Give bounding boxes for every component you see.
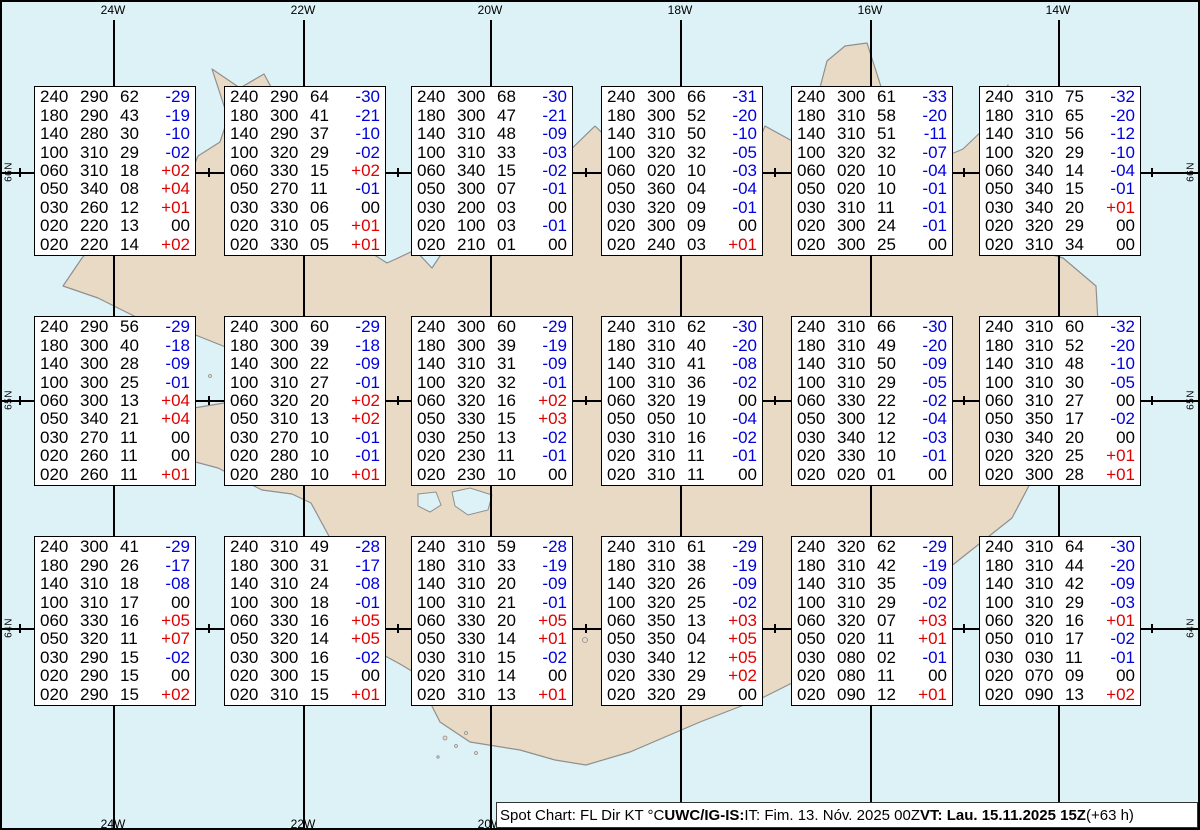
spot-row: 06033016+05 [230, 612, 380, 630]
spot-row: 14031051-11 [797, 125, 947, 143]
kt-cell: 11 [497, 447, 522, 465]
spot-row: 03032009-01 [607, 199, 757, 217]
kt-cell: 26 [687, 575, 712, 593]
temp-cell: -05 [1099, 374, 1135, 392]
dir-cell: 310 [647, 447, 678, 465]
latitude-label-left: 65N [4, 390, 15, 410]
fl-cell: 020 [40, 667, 71, 685]
dir-cell: 240 [647, 236, 678, 254]
longitude-label-bottom: 22W [291, 817, 316, 830]
fl-cell: 060 [417, 162, 448, 180]
dir-cell: 270 [270, 180, 301, 198]
kt-cell: 10 [310, 447, 335, 465]
spot-row: 05027011-01 [230, 180, 380, 198]
kt-cell: 20 [1065, 199, 1090, 217]
temp-cell: +03 [531, 410, 567, 428]
temp-cell: +01 [1099, 199, 1135, 217]
dir-cell: 210 [457, 236, 488, 254]
dir-cell: 320 [270, 392, 301, 410]
kt-cell: 13 [687, 612, 712, 630]
kt-cell: 62 [120, 88, 145, 106]
fl-cell: 020 [607, 217, 638, 235]
spot-box: 24030066-3118030052-2014031050-101003203… [601, 86, 763, 256]
temp-cell: 00 [531, 199, 567, 217]
kt-cell: 19 [687, 392, 712, 410]
temp-cell: +02 [344, 162, 380, 180]
kt-cell: 13 [1065, 686, 1090, 704]
temp-cell: -02 [154, 649, 190, 667]
fl-cell: 030 [985, 649, 1016, 667]
fl-cell: 180 [230, 107, 261, 125]
kt-cell: 40 [687, 337, 712, 355]
temp-cell: 00 [1099, 217, 1135, 235]
spot-row: 05033015+03 [417, 410, 567, 428]
temp-cell: -30 [531, 88, 567, 106]
dir-cell: 310 [80, 162, 111, 180]
grid-minor-tick [774, 396, 776, 405]
dir-cell: 320 [1025, 612, 1056, 630]
dir-cell: 310 [1025, 538, 1056, 556]
temp-cell: -03 [721, 162, 757, 180]
dir-cell: 300 [270, 107, 301, 125]
temp-cell: 00 [154, 429, 190, 447]
spot-row: 03008002-01 [797, 649, 947, 667]
dir-cell: 340 [837, 429, 868, 447]
kt-cell: 62 [877, 538, 902, 556]
temp-cell: -19 [154, 107, 190, 125]
kt-cell: 11 [877, 199, 902, 217]
dir-cell: 340 [80, 180, 111, 198]
dir-cell: 310 [80, 575, 111, 593]
fl-cell: 060 [797, 392, 828, 410]
fl-cell: 050 [417, 410, 448, 428]
fl-cell: 020 [607, 667, 638, 685]
temp-cell: -19 [531, 337, 567, 355]
kt-cell: 29 [687, 686, 712, 704]
spot-row: 18031065-20 [985, 107, 1135, 125]
kt-cell: 33 [497, 144, 522, 162]
dir-cell: 020 [837, 466, 868, 484]
kt-cell: 32 [687, 144, 712, 162]
fl-cell: 020 [607, 236, 638, 254]
spot-row: 0203101400 [417, 667, 567, 685]
temp-cell: -01 [721, 199, 757, 217]
spot-row: 18030039-19 [417, 337, 567, 355]
longitude-label-bottom: 24W [101, 817, 126, 830]
fl-cell: 100 [607, 594, 638, 612]
temp-cell: -10 [154, 125, 190, 143]
kt-cell: 12 [687, 649, 712, 667]
spot-row: 02028010+01 [230, 466, 380, 484]
kt-cell: 49 [877, 337, 902, 355]
fl-cell: 030 [607, 199, 638, 217]
spot-row: 06002010-04 [797, 162, 947, 180]
temp-cell: -01 [344, 447, 380, 465]
latitude-label-right: 65N [1186, 390, 1197, 410]
temp-cell: -21 [531, 107, 567, 125]
temp-cell: -01 [531, 594, 567, 612]
spot-row: 02033005+01 [230, 236, 380, 254]
spot-row: 03034020+01 [985, 199, 1135, 217]
kt-cell: 25 [1065, 447, 1090, 465]
spot-row: 10031030-05 [985, 374, 1135, 392]
kt-cell: 15 [310, 162, 335, 180]
fl-cell: 030 [607, 429, 638, 447]
kt-cell: 52 [1065, 337, 1090, 355]
dir-cell: 340 [1025, 199, 1056, 217]
grid-minor-tick [208, 168, 210, 177]
temp-cell: 00 [154, 447, 190, 465]
temp-cell: -01 [1099, 180, 1135, 198]
temp-cell: -17 [154, 557, 190, 575]
spot-row: 14031050-10 [607, 125, 757, 143]
kt-cell: 60 [497, 318, 522, 336]
kt-cell: 29 [877, 594, 902, 612]
spot-row: 14032026-09 [607, 575, 757, 593]
kt-cell: 30 [1065, 374, 1090, 392]
kt-cell: 29 [120, 144, 145, 162]
spot-row: 14031041-08 [607, 355, 757, 373]
spot-row: 03030016-02 [230, 649, 380, 667]
dir-cell: 310 [1025, 318, 1056, 336]
fl-cell: 180 [230, 337, 261, 355]
kt-cell: 41 [687, 355, 712, 373]
spot-row: 02031013+01 [417, 686, 567, 704]
dir-cell: 290 [80, 107, 111, 125]
temp-cell: -20 [721, 337, 757, 355]
fl-cell: 020 [417, 466, 448, 484]
temp-cell: -10 [1099, 355, 1135, 373]
spot-row: 02009013+02 [985, 686, 1135, 704]
spot-row: 03003011-01 [985, 649, 1135, 667]
dir-cell: 310 [837, 199, 868, 217]
fl-cell: 100 [40, 374, 71, 392]
legend-bar: Spot Chart: FL Dir KT °C UWC/IG-IS: IT: … [496, 802, 1198, 828]
legend-segment: IT: Fim. 13. Nóv. 2025 00Z [744, 807, 920, 824]
fl-cell: 050 [40, 410, 71, 428]
dir-cell: 310 [80, 594, 111, 612]
fl-cell: 020 [797, 236, 828, 254]
fl-cell: 180 [417, 337, 448, 355]
fl-cell: 020 [417, 236, 448, 254]
dir-cell: 290 [80, 557, 111, 575]
kt-cell: 29 [310, 144, 335, 162]
dir-cell: 310 [837, 318, 868, 336]
fl-cell: 030 [797, 199, 828, 217]
dir-cell: 290 [80, 88, 111, 106]
kt-cell: 14 [310, 630, 335, 648]
dir-cell: 200 [457, 199, 488, 217]
temp-cell: -32 [1099, 318, 1135, 336]
kt-cell: 18 [120, 575, 145, 593]
dir-cell: 310 [457, 125, 488, 143]
spot-row: 24030068-30 [417, 88, 567, 106]
spot-row: 10031029-03 [985, 594, 1135, 612]
kt-cell: 11 [120, 466, 145, 484]
kt-cell: 14 [497, 667, 522, 685]
spot-row: 1003101700 [40, 594, 190, 612]
kt-cell: 64 [1065, 538, 1090, 556]
temp-cell: -29 [721, 538, 757, 556]
dir-cell: 300 [80, 538, 111, 556]
spot-row: 24030041-29 [40, 538, 190, 556]
spot-row: 18031052-20 [985, 337, 1135, 355]
temp-cell: +03 [721, 612, 757, 630]
dir-cell: 320 [1025, 144, 1056, 162]
dir-cell: 310 [270, 217, 301, 235]
latitude-label-left: 64N [4, 618, 15, 638]
spot-row: 05002011+01 [797, 630, 947, 648]
kt-cell: 29 [1065, 594, 1090, 612]
longitude-label-top: 16W [858, 3, 883, 17]
temp-cell: -04 [1099, 162, 1135, 180]
kt-cell: 16 [310, 649, 335, 667]
spot-row: 05035017-02 [985, 410, 1135, 428]
temp-cell: +01 [1099, 466, 1135, 484]
dir-cell: 250 [457, 429, 488, 447]
spot-row: 10031036-02 [607, 374, 757, 392]
fl-cell: 030 [607, 649, 638, 667]
kt-cell: 39 [497, 337, 522, 355]
fl-cell: 020 [230, 466, 261, 484]
fl-cell: 050 [40, 180, 71, 198]
dir-cell: 010 [1025, 630, 1056, 648]
fl-cell: 020 [797, 217, 828, 235]
temp-cell: -09 [1099, 575, 1135, 593]
dir-cell: 310 [270, 575, 301, 593]
fl-cell: 240 [230, 88, 261, 106]
fl-cell: 060 [230, 162, 261, 180]
kt-cell: 24 [310, 575, 335, 593]
temp-cell: -20 [1099, 557, 1135, 575]
dir-cell: 090 [1025, 686, 1056, 704]
temp-cell: -19 [531, 557, 567, 575]
fl-cell: 060 [985, 612, 1016, 630]
fl-cell: 100 [417, 594, 448, 612]
temp-cell: -29 [911, 538, 947, 556]
dir-cell: 300 [80, 355, 111, 373]
dir-cell: 310 [647, 355, 678, 373]
dir-cell: 350 [647, 612, 678, 630]
dir-cell: 310 [270, 410, 301, 428]
kt-cell: 16 [310, 612, 335, 630]
spot-row: 18031049-20 [797, 337, 947, 355]
temp-cell: -32 [1099, 88, 1135, 106]
kt-cell: 11 [877, 630, 902, 648]
dir-cell: 300 [837, 236, 868, 254]
spot-row: 24029062-29 [40, 88, 190, 106]
fl-cell: 180 [417, 107, 448, 125]
temp-cell: +02 [154, 686, 190, 704]
fl-cell: 100 [607, 144, 638, 162]
kt-cell: 64 [310, 88, 335, 106]
dir-cell: 300 [457, 180, 488, 198]
temp-cell: -09 [154, 355, 190, 373]
temp-cell: -01 [911, 447, 947, 465]
spot-row: 05033014+01 [417, 630, 567, 648]
fl-cell: 060 [40, 162, 71, 180]
spot-row: 18030039-18 [230, 337, 380, 355]
spot-row: 0302000300 [417, 199, 567, 217]
temp-cell: +02 [154, 162, 190, 180]
spot-row: 10031029-05 [797, 374, 947, 392]
spot-row: 03029015-02 [40, 649, 190, 667]
dir-cell: 300 [1025, 466, 1056, 484]
fl-cell: 240 [607, 318, 638, 336]
temp-cell: +01 [344, 217, 380, 235]
temp-cell: -19 [721, 557, 757, 575]
fl-cell: 020 [40, 217, 71, 235]
fl-cell: 240 [230, 318, 261, 336]
fl-cell: 180 [985, 107, 1016, 125]
spot-row: 10032032-01 [417, 374, 567, 392]
fl-cell: 180 [797, 337, 828, 355]
spot-row: 02033010-01 [797, 447, 947, 465]
dir-cell: 340 [1025, 429, 1056, 447]
kt-cell: 28 [120, 355, 145, 373]
temp-cell: -30 [344, 88, 380, 106]
kt-cell: 01 [877, 466, 902, 484]
dir-cell: 020 [647, 162, 678, 180]
temp-cell: -20 [721, 107, 757, 125]
dir-cell: 300 [457, 107, 488, 125]
kt-cell: 11 [120, 630, 145, 648]
dir-cell: 350 [1025, 410, 1056, 428]
fl-cell: 140 [797, 125, 828, 143]
dir-cell: 020 [837, 630, 868, 648]
fl-cell: 030 [985, 429, 1016, 447]
spot-row: 03031015-02 [417, 649, 567, 667]
temp-cell: -04 [911, 162, 947, 180]
temp-cell: -29 [154, 538, 190, 556]
spot-row: 14028030-10 [40, 125, 190, 143]
fl-cell: 180 [985, 337, 1016, 355]
dir-cell: 300 [647, 217, 678, 235]
kt-cell: 15 [497, 162, 522, 180]
temp-cell: -02 [531, 162, 567, 180]
dir-cell: 310 [837, 355, 868, 373]
temp-cell: -02 [531, 429, 567, 447]
kt-cell: 04 [687, 630, 712, 648]
temp-cell: -01 [531, 374, 567, 392]
fl-cell: 020 [797, 667, 828, 685]
kt-cell: 56 [1065, 125, 1090, 143]
fl-cell: 020 [607, 686, 638, 704]
spot-row: 06034015-02 [417, 162, 567, 180]
dir-cell: 080 [837, 649, 868, 667]
longitude-label-top: 14W [1046, 3, 1071, 17]
longitude-label-top: 22W [291, 3, 316, 17]
spot-box: 24030061-3318031058-2014031051-111003203… [791, 86, 953, 256]
spot-row: 02033029+02 [607, 667, 757, 685]
fl-cell: 030 [230, 199, 261, 217]
kt-cell: 58 [877, 107, 902, 125]
dir-cell: 310 [457, 594, 488, 612]
spot-row: 10032029-10 [985, 144, 1135, 162]
kt-cell: 51 [877, 125, 902, 143]
kt-cell: 60 [310, 318, 335, 336]
fl-cell: 060 [230, 612, 261, 630]
spot-row: 24031064-30 [985, 538, 1135, 556]
temp-cell: +02 [154, 236, 190, 254]
dir-cell: 310 [457, 557, 488, 575]
dir-cell: 310 [1025, 107, 1056, 125]
temp-cell: 00 [721, 466, 757, 484]
dir-cell: 310 [647, 125, 678, 143]
spot-row: 24031049-28 [230, 538, 380, 556]
temp-cell: +02 [1099, 686, 1135, 704]
grid-minor-tick [963, 168, 965, 177]
fl-cell: 020 [417, 217, 448, 235]
kt-cell: 10 [877, 162, 902, 180]
fl-cell: 050 [985, 410, 1016, 428]
fl-cell: 180 [607, 337, 638, 355]
kt-cell: 21 [120, 410, 145, 428]
kt-cell: 25 [877, 236, 902, 254]
dir-cell: 310 [1025, 392, 1056, 410]
dir-cell: 320 [1025, 447, 1056, 465]
dir-cell: 310 [457, 686, 488, 704]
spot-row: 0303402000 [985, 429, 1135, 447]
fl-cell: 020 [985, 466, 1016, 484]
dir-cell: 280 [270, 466, 301, 484]
temp-cell: -30 [911, 318, 947, 336]
spot-row: 24031062-30 [607, 318, 757, 336]
temp-cell: -09 [344, 355, 380, 373]
dir-cell: 340 [1025, 180, 1056, 198]
fl-cell: 030 [417, 429, 448, 447]
temp-cell: -28 [344, 538, 380, 556]
kt-cell: 18 [120, 162, 145, 180]
island [209, 375, 212, 378]
dir-cell: 300 [80, 374, 111, 392]
spot-row: 02030024-01 [797, 217, 947, 235]
temp-cell: 00 [1099, 392, 1135, 410]
temp-cell: -10 [344, 125, 380, 143]
fl-cell: 050 [230, 180, 261, 198]
kt-cell: 08 [120, 180, 145, 198]
temp-cell: -18 [344, 337, 380, 355]
temp-cell: -02 [721, 374, 757, 392]
dir-cell: 310 [1025, 575, 1056, 593]
dir-cell: 360 [647, 180, 678, 198]
fl-cell: 030 [417, 199, 448, 217]
spot-box: 24032062-2918031042-1914031035-091003102… [791, 536, 953, 706]
dir-cell: 320 [647, 575, 678, 593]
fl-cell: 140 [40, 575, 71, 593]
temp-cell: -17 [344, 557, 380, 575]
spot-row: 0203101100 [607, 466, 757, 484]
kt-cell: 47 [497, 107, 522, 125]
fl-cell: 020 [985, 686, 1016, 704]
latitude-label-left: 66N [4, 162, 15, 182]
kt-cell: 18 [310, 594, 335, 612]
dir-cell: 310 [457, 355, 488, 373]
kt-cell: 32 [877, 144, 902, 162]
dir-cell: 070 [1025, 667, 1056, 685]
kt-cell: 17 [1065, 410, 1090, 428]
fl-cell: 020 [230, 686, 261, 704]
temp-cell: +02 [531, 392, 567, 410]
temp-cell: -01 [154, 374, 190, 392]
longitude-label-top: 24W [101, 3, 126, 17]
fl-cell: 240 [797, 88, 828, 106]
temp-cell: +01 [154, 466, 190, 484]
dir-cell: 300 [270, 557, 301, 575]
fl-cell: 020 [417, 667, 448, 685]
spot-row: 06031018+02 [40, 162, 190, 180]
spot-row: 03031016-02 [607, 429, 757, 447]
